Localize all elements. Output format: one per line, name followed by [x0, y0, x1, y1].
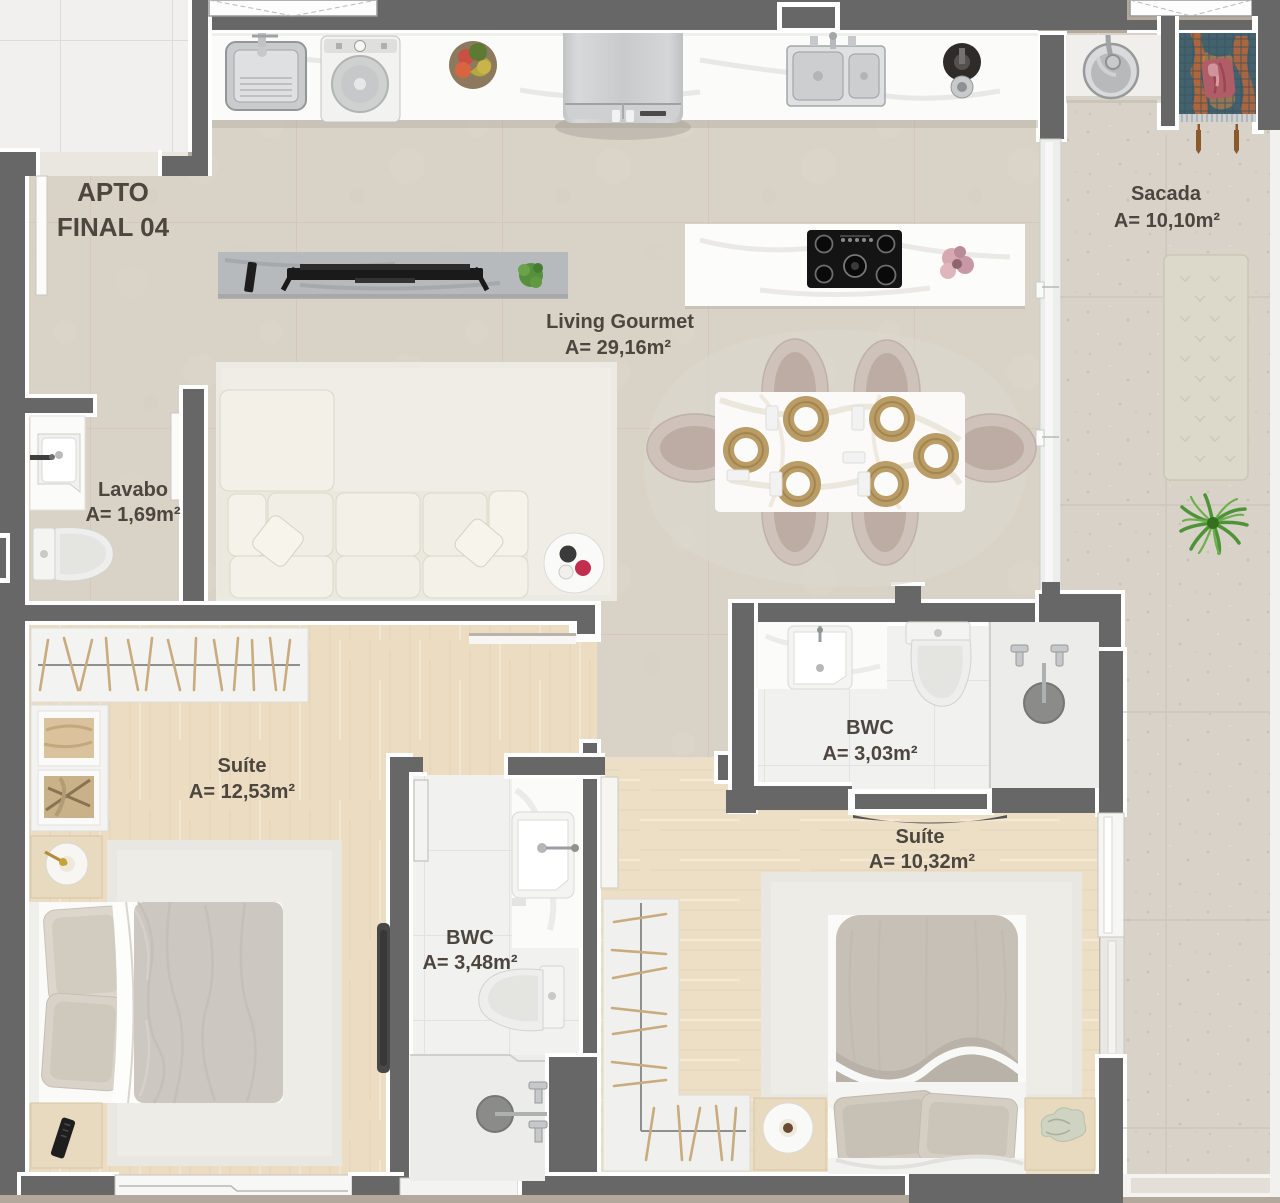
svg-text:Lavabo: Lavabo	[98, 479, 168, 501]
svg-text:BWC: BWC	[846, 717, 894, 739]
svg-text:A= 10,10m²: A= 10,10m²	[1114, 210, 1221, 232]
svg-text:BWC: BWC	[446, 927, 494, 949]
svg-text:A= 12,53m²: A= 12,53m²	[189, 781, 296, 803]
svg-text:Suíte: Suíte	[218, 755, 267, 777]
svg-text:A= 29,16m²: A= 29,16m²	[565, 337, 672, 359]
svg-text:A= 3,03m²: A= 3,03m²	[822, 743, 917, 765]
svg-text:APTO: APTO	[77, 177, 149, 207]
svg-text:Suíte: Suíte	[896, 826, 945, 848]
svg-text:A= 1,69m²: A= 1,69m²	[85, 504, 180, 526]
svg-text:FINAL 04: FINAL 04	[57, 212, 170, 242]
svg-text:A= 10,32m²: A= 10,32m²	[869, 851, 976, 873]
svg-text:A= 3,48m²: A= 3,48m²	[422, 952, 517, 974]
svg-text:Living Gourmet: Living Gourmet	[546, 311, 694, 333]
svg-text:Sacada: Sacada	[1131, 183, 1202, 205]
